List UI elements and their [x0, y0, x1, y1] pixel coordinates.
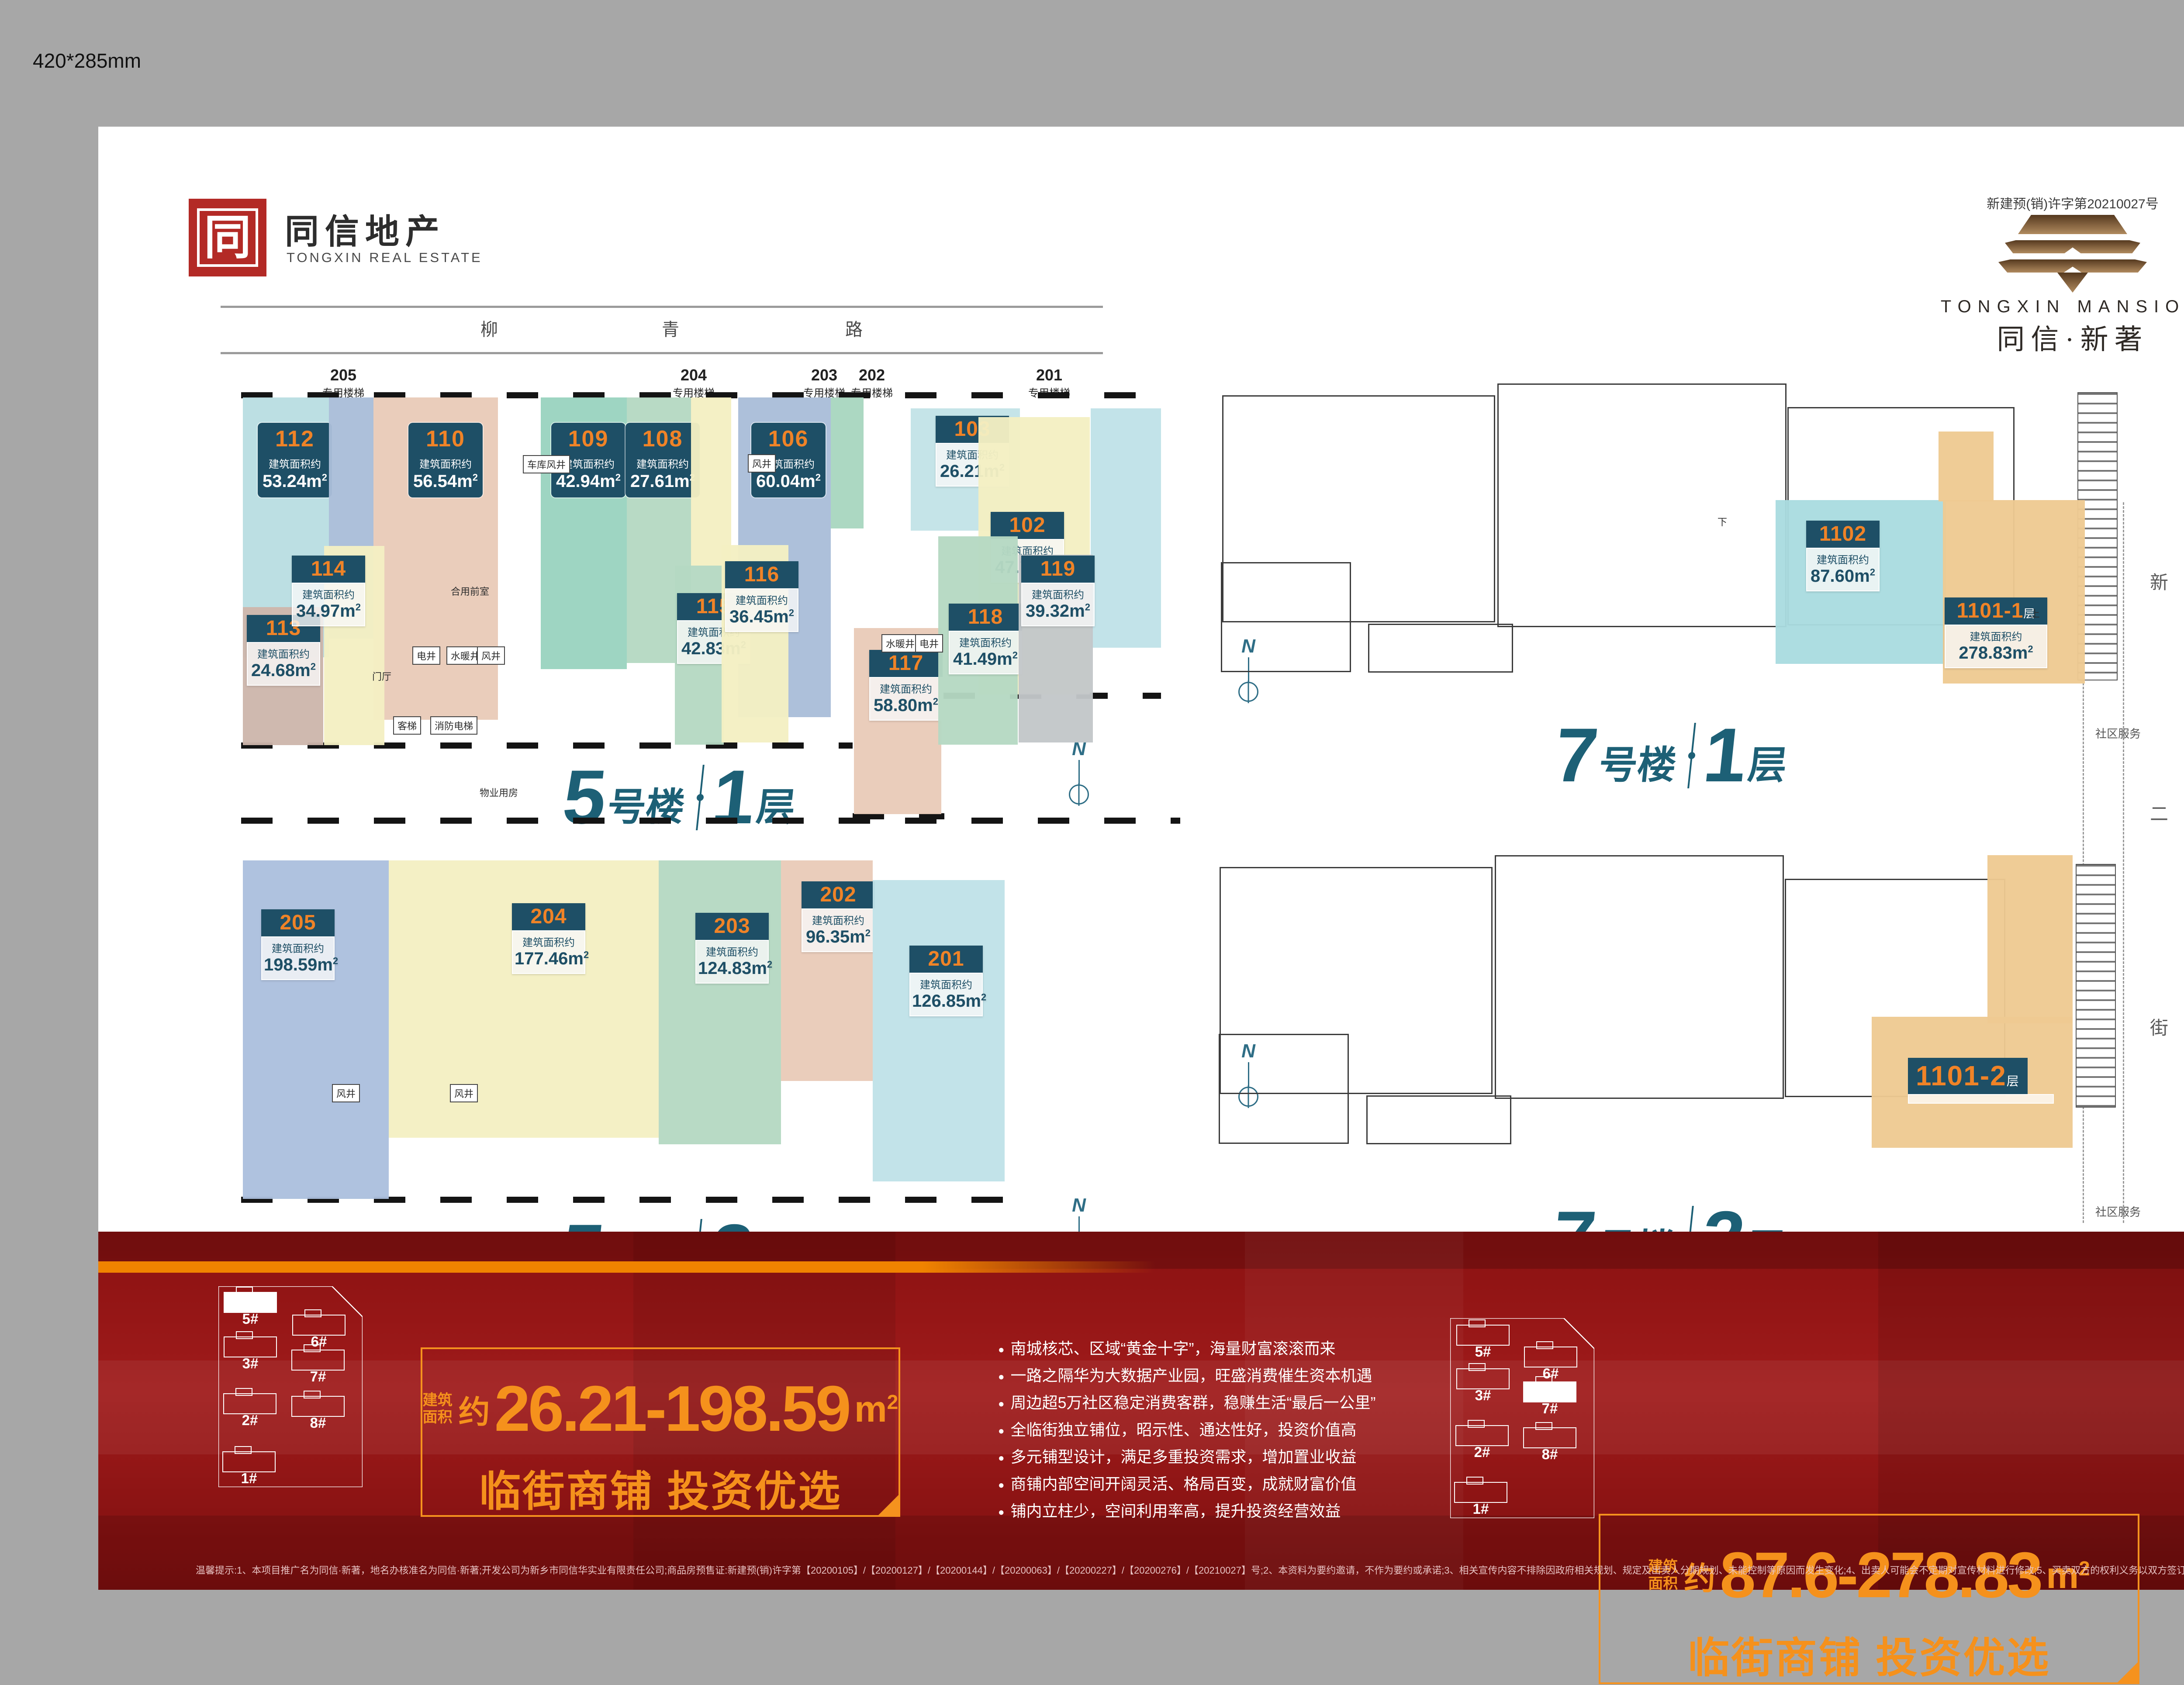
unit-area: 60.04m2	[754, 472, 823, 491]
unit-area: 36.45m2	[728, 607, 796, 627]
mansion-name-en: TONGXIN MANSION	[1941, 297, 2184, 317]
unit-number: 118	[949, 604, 1022, 631]
site-building-top	[1535, 1422, 1552, 1430]
selling-point-item: 周边超5万社区稳定消费客群，稳赚生活“最后一公里”	[998, 1390, 1376, 1417]
unit-area: 96.35m2	[804, 927, 872, 947]
street-name-char: 街	[2150, 1013, 2168, 1040]
unit-area: 24.68m2	[249, 661, 318, 680]
unit-label: 114建筑面积约34.97m2	[292, 556, 365, 626]
room-label: 合用前室	[451, 584, 489, 598]
unit-area: 126.85m2	[912, 991, 980, 1011]
site-building-label: 5#	[242, 1311, 259, 1327]
unit-number: 109	[554, 427, 623, 451]
site-building-2	[223, 1393, 276, 1414]
unit-label: 117建筑面积约58.80m2	[869, 650, 943, 721]
unit-area: 42.94m2	[554, 472, 623, 491]
disclaimer-text: 温馨提示:1、本项目推广名为同信·新著，地名办核准名为同信·新著;开发公司为新乡…	[196, 1563, 2148, 1577]
compass-ring	[1069, 784, 1089, 805]
title-building-number: 5	[560, 759, 610, 836]
room-label: 风井	[332, 1084, 360, 1102]
unit-label-body: 建筑面积约58.80m2	[869, 677, 943, 721]
banner-accent-streak	[98, 1261, 1155, 1273]
stair-heading-number: 202	[841, 366, 902, 384]
site-building-1	[222, 1451, 276, 1472]
unit-label: 118建筑面积约41.49m2	[949, 604, 1022, 674]
unit-label-body: 建筑面积约24.68m2	[247, 642, 320, 686]
site-building-top	[1535, 1376, 1552, 1384]
selling-point-item: 一路之隔华为大数据产业园，旺盛消费催生资本机遇	[998, 1363, 1376, 1390]
mini-site-plan: 5#6#3#7#2#8#1#	[1450, 1318, 1594, 1518]
room-label: 水暖井	[881, 634, 919, 653]
community-service-label: 社区服务	[2095, 1203, 2141, 1219]
site-building-label: 8#	[1542, 1446, 1558, 1463]
unit-label: 119建筑面积约39.32m2	[1021, 556, 1095, 626]
unit-label: 1101-2层	[1908, 1058, 2052, 1104]
unit-label: 112建筑面积约53.24m2	[258, 423, 332, 497]
site-building-top	[304, 1391, 321, 1398]
unit-label-body: 建筑面积约278.83m2	[1945, 625, 2047, 668]
offer-box-left: 建筑面积约26.21-198.59m2临街商铺 投资优选	[421, 1347, 900, 1517]
unit-area-prefix: 建筑面积约	[951, 634, 1019, 649]
brand-name-cn: 同信地产	[285, 204, 446, 253]
mansion-logo-icon	[1998, 215, 2147, 293]
unit-number: 119	[1021, 556, 1095, 583]
site-building-8	[1523, 1427, 1576, 1448]
unit-area: 198.59m2	[264, 955, 332, 975]
offer-slogan: 临街商铺 投资优选	[422, 1457, 898, 1518]
site-building-top	[1469, 1363, 1486, 1371]
unit-label: 202建筑面积约96.35m2	[802, 881, 875, 952]
unit-area-prefix: 建筑面积约	[1947, 628, 2045, 643]
community-service-label: 社区服务	[2095, 725, 2141, 741]
plan-outline	[1366, 1095, 1511, 1144]
selling-points-list: 南城核芯、区域“黄金十字”，海量财富滚滚而来一路之隔华为大数据产业园，旺盛消费催…	[998, 1336, 1376, 1525]
unit-label: 110建筑面积约56.54m2	[408, 423, 483, 497]
site-building-7	[291, 1350, 345, 1371]
unit-number: 106	[754, 427, 823, 451]
unit-label-body: 建筑面积约36.45m2	[725, 588, 798, 632]
site-building-top	[235, 1388, 252, 1396]
site-building-top	[1536, 1341, 1553, 1349]
stair-heading-number: 205	[313, 366, 374, 384]
offer-area-prefix: 建筑面积	[423, 1392, 453, 1426]
offer-slogan: 临街商铺 投资优选	[1600, 1624, 2138, 1685]
site-building-7	[1523, 1381, 1576, 1402]
room-label: 物业用房	[480, 785, 518, 799]
title-floor-number: 1	[708, 759, 759, 836]
unit-label: 205建筑面积约198.59m2	[261, 909, 335, 980]
room-label: 车库风井	[523, 455, 570, 473]
room-label: 电井	[915, 634, 943, 653]
room-label: 下	[1717, 514, 1727, 528]
unit-number: 202	[802, 881, 875, 908]
unit-area: 41.49m2	[951, 649, 1019, 669]
selling-point-item: 南城核芯、区域“黄金十字”，海量财富滚滚而来	[998, 1336, 1376, 1363]
offer-box-fold	[877, 1493, 900, 1517]
unit-number: 201	[909, 946, 983, 973]
unit-block	[831, 397, 864, 528]
room-label: 风井	[450, 1084, 478, 1102]
plan-title-b5-f1: 5号楼1层	[560, 759, 803, 836]
room-label: 消防电梯	[430, 716, 477, 735]
unit-block	[1987, 855, 2073, 1023]
unit-number: 1101-2层	[1908, 1058, 2028, 1094]
unit-area: 177.46m2	[515, 949, 583, 969]
stair-heading-number: 201	[1019, 366, 1080, 384]
street-name-char: 新	[2150, 568, 2168, 594]
unit-area: 58.80m2	[872, 696, 940, 715]
offer-range: 26.21-198.59	[494, 1372, 849, 1446]
unit-label: 108建筑面积约27.61m2	[625, 423, 700, 497]
room-label: 门厅	[372, 669, 391, 683]
title-floor-number: 1	[1700, 717, 1751, 794]
road-edge-line	[221, 306, 1103, 308]
unit-area: 278.83m2	[1947, 643, 2045, 663]
presale-permit-text: 新建预(销)许字第20210027号	[1987, 193, 2158, 212]
unit-area-prefix: 建筑面积约	[1809, 551, 1877, 566]
site-building-top	[236, 1287, 253, 1295]
north-compass-icon: N	[1066, 738, 1092, 805]
unit-area-prefix: 建筑面积约	[294, 586, 363, 601]
offer-unit: m2	[854, 1388, 898, 1430]
unit-label: 204建筑面积约177.46m2	[512, 903, 585, 974]
site-building-top	[235, 1446, 252, 1454]
plan-outline	[1368, 624, 1513, 673]
unit-number: 110	[411, 427, 480, 451]
site-building-5	[1456, 1325, 1510, 1346]
site-building-6	[292, 1315, 346, 1336]
unit-number: 112	[260, 427, 329, 451]
unit-area: 56.54m2	[411, 472, 480, 491]
site-building-5	[224, 1292, 277, 1313]
street-name-char: 二	[2150, 799, 2168, 826]
unit-area-prefix: 建筑面积约	[912, 976, 980, 991]
room-label: 上	[2030, 606, 2040, 620]
unit-number: 204	[512, 903, 585, 930]
plan-outline	[1219, 1034, 1349, 1144]
selling-point-item: 全临街独立铺位，昭示性、通达性好，投资价值高	[998, 1417, 1376, 1444]
plan-outline	[1495, 855, 1784, 1099]
unit-label-body: 建筑面积约41.49m2	[949, 631, 1022, 674]
unit-area: 34.97m2	[294, 601, 363, 621]
unit-label-strip	[1908, 1094, 2054, 1104]
plan-wall	[241, 818, 1180, 824]
unit-label-body: 建筑面积约124.83m2	[695, 940, 769, 984]
unit-area-prefix: 建筑面积约	[411, 456, 480, 471]
unit-area-prefix: 建筑面积约	[728, 592, 796, 607]
road-edge-line	[221, 352, 1103, 354]
site-building-3	[1456, 1368, 1510, 1389]
site-building-top	[1469, 1319, 1486, 1327]
mini-site-plan: 5#6#3#7#2#8#1#	[218, 1286, 363, 1487]
selling-point-item: 商铺内部空间开阔灵活、格局百变，成就财富价值	[998, 1471, 1376, 1498]
title-building-word: 号楼	[1597, 734, 1679, 790]
unit-area: 124.83m2	[698, 959, 766, 978]
site-building-3	[224, 1336, 277, 1357]
title-building-number: 7	[1551, 717, 1602, 794]
site-building-label: 7#	[310, 1368, 326, 1385]
unit-number: 108	[628, 427, 697, 451]
unit-label-body: 建筑面积约39.32m2	[1021, 583, 1095, 626]
room-label: 风井	[748, 454, 776, 473]
room-label: 风井	[477, 646, 505, 665]
unit-label: 1102建筑面积约87.60m2	[1806, 521, 1880, 591]
unit-number: 102	[991, 512, 1064, 539]
stair-heading-number: 204	[663, 366, 724, 384]
compass-ring	[1238, 682, 1258, 702]
site-building-label: 5#	[1475, 1343, 1491, 1360]
road-name-char: 路	[845, 315, 863, 341]
unit-area-prefix: 建筑面积约	[249, 646, 318, 661]
road-name-char: 青	[662, 315, 679, 341]
brand-logo-glyph: 同	[197, 208, 258, 267]
page-size-label: 420*285mm	[33, 49, 141, 73]
unit-label-body: 建筑面积约126.85m2	[909, 973, 983, 1016]
unit-area-prefix: 建筑面积约	[1024, 586, 1092, 601]
offer-approx: 约	[459, 1386, 490, 1432]
title-separator	[1687, 723, 1696, 788]
unit-label: 201建筑面积约126.85m2	[909, 946, 983, 1016]
offer-row: 建筑面积约26.21-198.59m2	[422, 1372, 898, 1446]
room-label: 客梯	[393, 716, 421, 735]
site-building-top	[1468, 1420, 1485, 1428]
brand-logo-icon: 同	[189, 199, 266, 276]
site-building-top	[1466, 1477, 1483, 1485]
unit-label-body: 建筑面积约87.60m2	[1806, 548, 1880, 591]
site-building-label: 1#	[1473, 1501, 1489, 1517]
site-building-top	[304, 1344, 321, 1352]
selling-point-item: 多元铺型设计，满足多重投资需求，增加置业收益	[998, 1444, 1376, 1471]
unit-area-prefix: 建筑面积约	[872, 680, 940, 696]
site-building-label: 2#	[242, 1412, 258, 1429]
unit-number: 205	[261, 909, 335, 936]
unit-area-prefix: 建筑面积约	[515, 934, 583, 949]
unit-block	[691, 397, 731, 566]
unit-block	[1939, 432, 1994, 501]
site-building-label: 8#	[310, 1415, 326, 1431]
site-building-8	[291, 1396, 345, 1417]
site-building-top	[304, 1309, 321, 1317]
offer-box-right: 建筑面积约87.6-278.83m2临街商铺 投资优选	[1599, 1514, 2139, 1684]
site-building-top	[236, 1331, 253, 1339]
unit-area-prefix: 建筑面积约	[698, 943, 766, 959]
road-name-char: 柳	[480, 315, 498, 341]
unit-label-body: 建筑面积约34.97m2	[292, 583, 365, 626]
brand-name-en: TONGXIN REAL ESTATE	[287, 250, 483, 266]
plan-outline	[1497, 383, 1787, 627]
unit-area: 39.32m2	[1024, 601, 1092, 621]
room-label: 电井	[412, 646, 440, 665]
unit-number: 1102	[1806, 521, 1880, 548]
poster-root: 420*285mm 同 同信地产 TONGXIN REAL ESTATE 新建预…	[0, 0, 2184, 1685]
selling-point-item: 铺内立柱少，空间利用率高，提升投资经营效益	[998, 1498, 1376, 1525]
unit-block-203	[659, 860, 781, 1144]
unit-number: 203	[695, 913, 769, 940]
title-floor-word: 层	[1745, 734, 1790, 790]
street-dashed-line	[2123, 502, 2124, 1223]
unit-block-201	[873, 880, 1005, 1181]
site-building-label: 3#	[242, 1355, 259, 1372]
site-building-label: 7#	[1542, 1400, 1558, 1417]
unit-area: 27.61m2	[628, 472, 697, 491]
unit-area-prefix: 建筑面积约	[628, 456, 697, 471]
site-building-6	[1524, 1347, 1577, 1367]
plan-outline	[2076, 864, 2116, 1108]
unit-label-body: 建筑面积约198.59m2	[261, 936, 335, 980]
offer-box-fold	[2116, 1661, 2139, 1684]
unit-area-prefix: 建筑面积约	[260, 456, 329, 471]
unit-area-prefix: 建筑面积约	[804, 912, 872, 927]
unit-block	[1091, 408, 1161, 648]
unit-number: 116	[725, 561, 798, 588]
unit-number: 114	[292, 556, 365, 583]
site-building-label: 2#	[1474, 1444, 1490, 1461]
unit-area-prefix: 建筑面积约	[264, 940, 332, 955]
site-building-2	[1455, 1425, 1509, 1446]
compass-n: N	[1066, 1195, 1092, 1216]
site-building-label: 1#	[241, 1470, 257, 1487]
unit-label-body: 建筑面积约177.46m2	[512, 930, 585, 974]
unit-number: 117	[869, 650, 943, 677]
site-building-1	[1454, 1482, 1507, 1503]
mansion-name-cn: 同信·新著	[1997, 317, 2148, 357]
site-building-label: 3#	[1475, 1387, 1491, 1404]
plan-outline	[1221, 562, 1351, 672]
unit-area: 53.24m2	[260, 472, 329, 491]
unit-label-body: 建筑面积约96.35m2	[802, 908, 875, 952]
unit-area: 87.60m2	[1809, 566, 1877, 586]
compass-stem	[1078, 760, 1080, 784]
unit-label: 203建筑面积约124.83m2	[695, 913, 769, 984]
plan-title-b7-f1: 7号楼1层	[1551, 717, 1794, 794]
unit-label: 116建筑面积约36.45m2	[725, 561, 798, 632]
unit-block-204	[389, 860, 659, 1138]
